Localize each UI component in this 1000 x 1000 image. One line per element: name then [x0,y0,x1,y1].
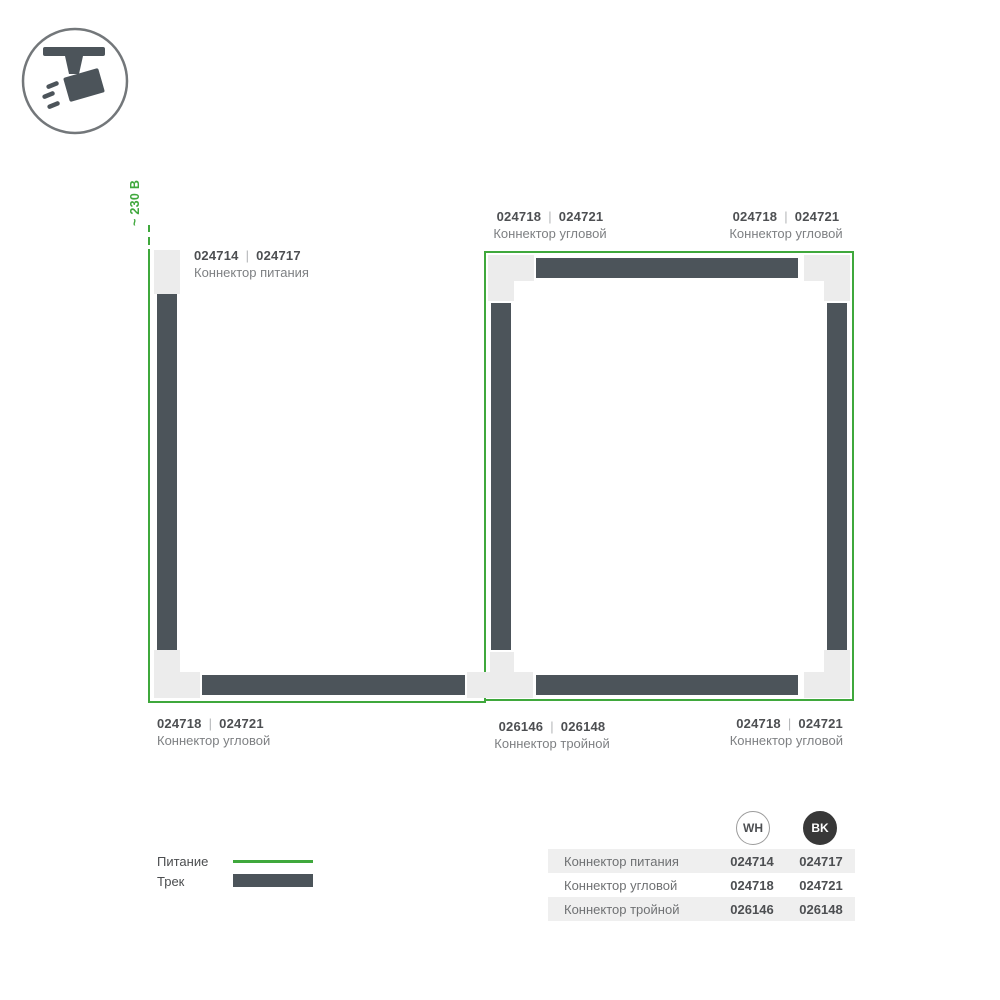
row-label: Коннектор угловой [548,878,717,893]
legend-track-swatch [233,874,313,887]
row-code-bk: 024721 [787,878,855,893]
corner-connector-block [824,255,850,301]
callout-corner-top-right: 024718|024721 Коннектор угловой [696,209,876,241]
table-row: Коннектор питания 024714 024717 [548,849,855,873]
track-segment-left [157,294,177,650]
row-code-bk: 026148 [787,902,855,917]
color-badge-black: BK [803,811,837,845]
row-label: Коннектор питания [548,854,717,869]
legend-power-swatch [233,860,313,863]
power-feed-dash [148,237,150,245]
triple-connector-block [467,672,533,698]
power-line-left [148,249,150,703]
callout-power-connector: 024714|024717 Коннектор питания [194,248,309,280]
power-connector-block [154,250,180,294]
table-row: Коннектор угловой 024718 024721 [548,873,855,897]
color-badge-white: WH [736,811,770,845]
callout-corner-bottom-right: 024718|024721 Коннектор угловой [663,716,843,748]
track-spotlight-icon [21,27,129,135]
row-code-wh: 024718 [717,878,787,893]
table-row: Коннектор тройной 026146 026148 [548,897,855,921]
part-number-table: Коннектор питания 024714 024717 Коннекто… [548,849,855,921]
corner-connector-block [488,255,514,301]
row-code-wh: 026146 [717,902,787,917]
track-segment-bottom-right [536,675,798,695]
row-code-bk: 024717 [787,854,855,869]
callout-triple-connector: 026146|026148 Коннектор тройной [462,719,642,751]
track-segment-inner-left [491,303,511,650]
power-feed-dash [148,225,150,232]
power-line-loop [484,251,854,701]
track-segment-right [827,303,847,650]
power-line-bottom [148,701,486,703]
corner-connector-block [804,672,850,698]
voltage-label: ~ 230 В [128,180,142,226]
callout-corner-top-left: 024718|024721 Коннектор угловой [460,209,640,241]
page: ~ 230 В 024714|024717 Коннектор питания … [0,0,1000,1000]
callout-corner-bottom-left: 024718|024721 Коннектор угловой [157,716,270,748]
legend-track-label: Трек [157,874,184,889]
row-label: Коннектор тройной [548,902,717,917]
track-light-logo [21,27,129,135]
track-segment-bottom-left [202,675,465,695]
track-bar-glyph [43,47,105,56]
row-code-wh: 024714 [717,854,787,869]
track-segment-top [536,258,798,278]
legend-power-label: Питание [157,854,208,869]
corner-connector-block [154,672,200,698]
